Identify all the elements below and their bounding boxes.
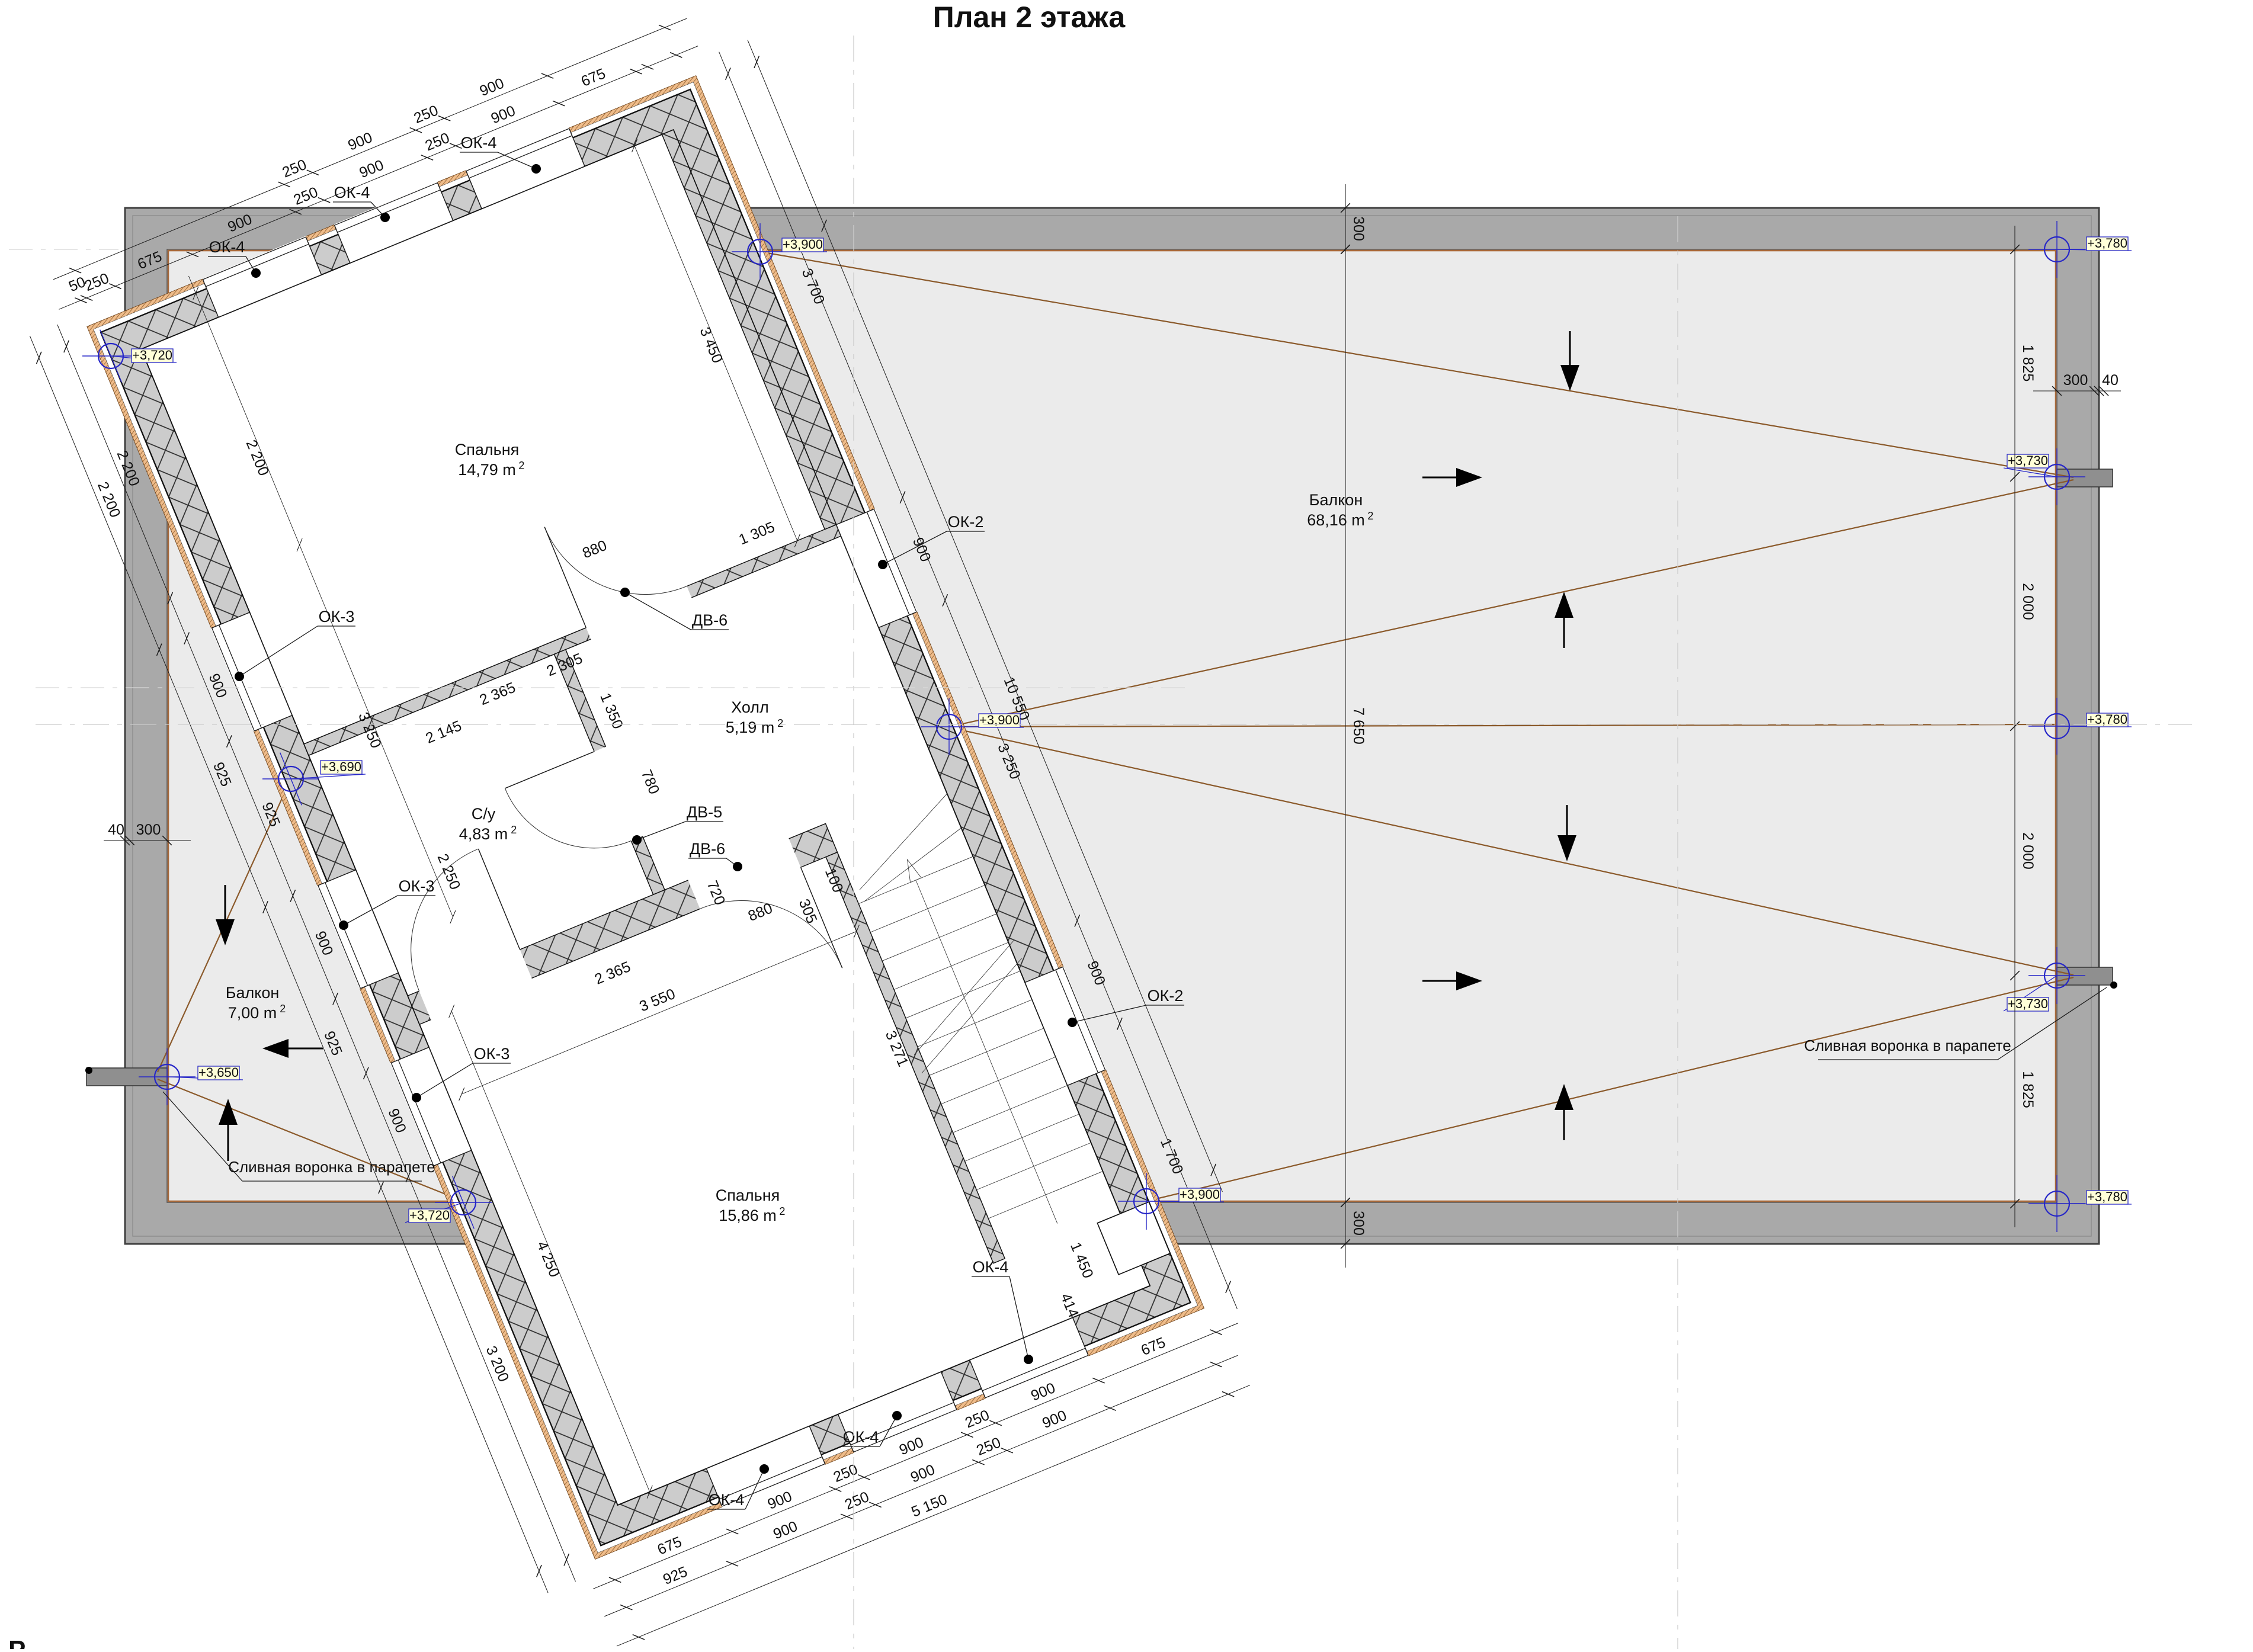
svg-text:ОК-4: ОК-4 bbox=[209, 238, 245, 256]
svg-text:ОК-4: ОК-4 bbox=[334, 184, 370, 201]
svg-text:ОК-3: ОК-3 bbox=[474, 1045, 510, 1063]
svg-text:+3,690: +3,690 bbox=[321, 759, 361, 774]
svg-text:40: 40 bbox=[108, 822, 124, 838]
svg-text:2: 2 bbox=[777, 717, 783, 729]
svg-text:300: 300 bbox=[1350, 1211, 1367, 1236]
svg-text:2: 2 bbox=[518, 460, 524, 471]
svg-text:40: 40 bbox=[2102, 372, 2119, 389]
svg-text:+3,780: +3,780 bbox=[2087, 236, 2127, 251]
svg-text:Спальня: Спальня bbox=[455, 441, 520, 458]
svg-text:ОК-2: ОК-2 bbox=[948, 513, 984, 531]
svg-text:+3,720: +3,720 bbox=[409, 1208, 450, 1223]
svg-text:2 000: 2 000 bbox=[2020, 832, 2036, 870]
svg-text:+3,720: +3,720 bbox=[132, 348, 172, 363]
svg-text:Холл: Холл bbox=[731, 698, 769, 716]
svg-text:Сливная воронка в парапете: Сливная воронка в парапете bbox=[228, 1158, 435, 1176]
svg-text:+3,650: +3,650 bbox=[198, 1065, 239, 1080]
svg-text:С/у: С/у bbox=[472, 805, 496, 823]
svg-text:300: 300 bbox=[2063, 372, 2088, 389]
svg-text:Спальня: Спальня bbox=[716, 1186, 780, 1204]
svg-text:7,00 m: 7,00 m bbox=[228, 1004, 277, 1022]
svg-text:ОК-4: ОК-4 bbox=[461, 134, 497, 152]
svg-text:300: 300 bbox=[136, 822, 161, 838]
svg-text:План 2 этажа: План 2 этажа bbox=[933, 1, 1126, 34]
svg-text:+3,730: +3,730 bbox=[2008, 996, 2048, 1011]
svg-text:ОК-2: ОК-2 bbox=[1148, 987, 1184, 1005]
svg-text:+3,900: +3,900 bbox=[1180, 1187, 1220, 1202]
svg-text:5,19 m: 5,19 m bbox=[726, 718, 775, 736]
svg-text:2 000: 2 000 bbox=[2020, 583, 2036, 620]
svg-text:Р: Р bbox=[8, 1635, 25, 1649]
svg-text:ДВ-6: ДВ-6 bbox=[690, 840, 725, 858]
svg-text:ДВ-6: ДВ-6 bbox=[692, 611, 728, 629]
svg-text:2: 2 bbox=[511, 824, 517, 836]
svg-text:+3,900: +3,900 bbox=[783, 237, 823, 252]
svg-text:Балкон: Балкон bbox=[226, 984, 280, 1002]
svg-text:ОК-4: ОК-4 bbox=[843, 1428, 879, 1446]
svg-text:ОК-3: ОК-3 bbox=[319, 608, 355, 625]
svg-text:4,83 m: 4,83 m bbox=[459, 825, 508, 843]
svg-text:2: 2 bbox=[1367, 510, 1373, 522]
svg-text:1 825: 1 825 bbox=[2020, 1071, 2036, 1108]
svg-text:ДВ-5: ДВ-5 bbox=[687, 803, 722, 821]
svg-text:15,86 m: 15,86 m bbox=[719, 1207, 777, 1224]
svg-text:+3,780: +3,780 bbox=[2087, 1189, 2127, 1204]
svg-text:ОК-4: ОК-4 bbox=[973, 1258, 1009, 1276]
svg-text:ОК-4: ОК-4 bbox=[709, 1491, 745, 1509]
svg-text:+3,900: +3,900 bbox=[979, 713, 1020, 727]
svg-text:14,79 m: 14,79 m bbox=[458, 461, 516, 479]
svg-text:ОК-3: ОК-3 bbox=[399, 877, 435, 895]
svg-text:Сливная воронка в парапете: Сливная воронка в парапете bbox=[1804, 1037, 2011, 1054]
svg-text:7 650: 7 650 bbox=[1350, 707, 1367, 745]
svg-text:1 825: 1 825 bbox=[2020, 345, 2036, 382]
svg-text:2: 2 bbox=[779, 1205, 785, 1217]
svg-text:300: 300 bbox=[1350, 216, 1367, 241]
svg-text:68,16 m: 68,16 m bbox=[1307, 511, 1365, 529]
svg-text:2: 2 bbox=[280, 1003, 286, 1015]
svg-text:Балкон: Балкон bbox=[1309, 491, 1363, 509]
svg-text:+3,730: +3,730 bbox=[2008, 453, 2048, 468]
